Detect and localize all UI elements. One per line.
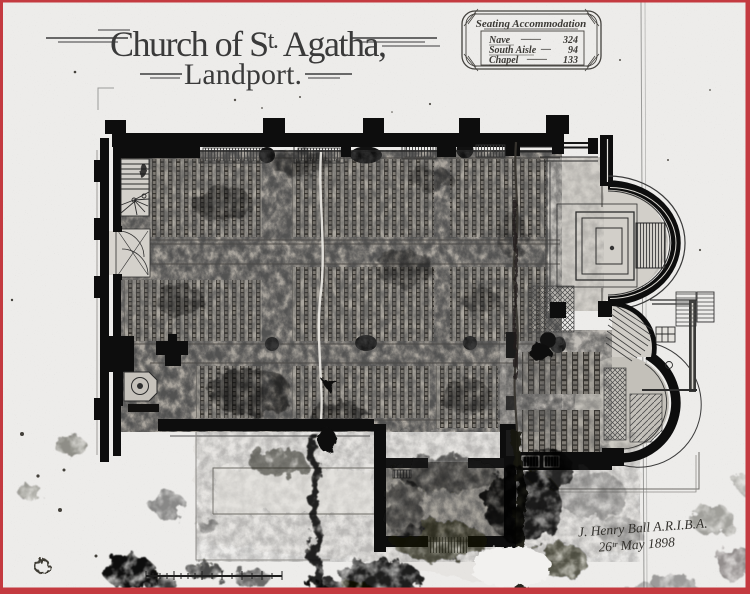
svg-text:Landport.: Landport. bbox=[184, 58, 302, 91]
svg-text:——: —— bbox=[520, 34, 541, 45]
svg-text:——: —— bbox=[526, 54, 547, 65]
svg-text:Seating Accommodation: Seating Accommodation bbox=[476, 18, 587, 30]
svg-text:Chapel: Chapel bbox=[489, 55, 519, 66]
svg-text:133: 133 bbox=[563, 55, 578, 66]
